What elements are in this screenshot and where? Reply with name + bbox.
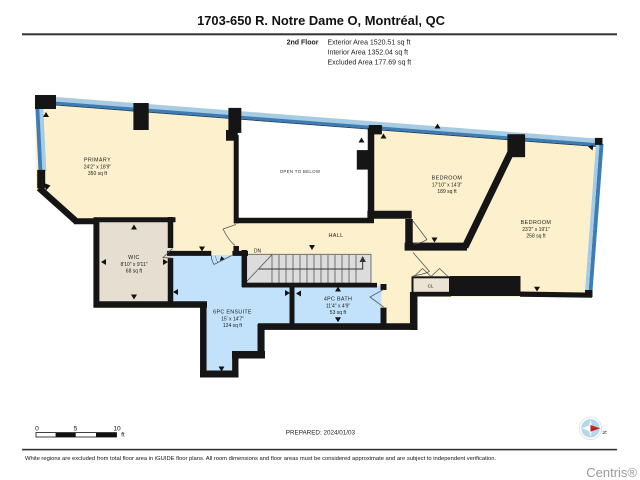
- svg-text:Excluded Area 177.69 sq ft: Excluded Area 177.69 sq ft: [328, 59, 412, 66]
- svg-text:ft: ft: [121, 432, 125, 438]
- svg-text:BEDROOM: BEDROOM: [432, 176, 463, 182]
- svg-text:Centris®: Centris®: [586, 465, 637, 480]
- svg-text:BEDROOM: BEDROOM: [521, 220, 552, 226]
- svg-text:15' x 14'7": 15' x 14'7": [221, 317, 244, 323]
- svg-text:23'2" x 19'1": 23'2" x 19'1": [522, 227, 550, 233]
- svg-text:2nd Floor: 2nd Floor: [287, 39, 319, 46]
- svg-text:N: N: [600, 431, 606, 435]
- svg-text:OPEN TO BELOW: OPEN TO BELOW: [280, 169, 321, 174]
- svg-text:68 sq ft: 68 sq ft: [126, 269, 143, 275]
- svg-text:PRIMARY: PRIMARY: [84, 158, 111, 164]
- svg-text:CL: CL: [428, 284, 434, 289]
- svg-text:17'10" x 14'3": 17'10" x 14'3": [432, 183, 462, 189]
- svg-text:HALL: HALL: [328, 233, 343, 239]
- svg-text:11'4" x 4'9": 11'4" x 4'9": [326, 304, 350, 310]
- svg-text:6PC ENSUITE: 6PC ENSUITE: [213, 310, 252, 316]
- svg-text:DN: DN: [254, 248, 262, 254]
- svg-text:Exterior Area 1520.51 sq ft: Exterior Area 1520.51 sq ft: [328, 39, 411, 46]
- svg-text:PREPARED: 2024/01/03: PREPARED: 2024/01/03: [286, 429, 356, 436]
- svg-text:WIC: WIC: [128, 255, 140, 261]
- svg-text:0: 0: [35, 426, 39, 433]
- svg-text:350 sq ft: 350 sq ft: [88, 171, 108, 177]
- svg-text:189 sq ft: 189 sq ft: [437, 189, 457, 195]
- svg-text:1703-650 R. Notre Dame O, Mont: 1703-650 R. Notre Dame O, Montréal, QC: [197, 13, 445, 28]
- svg-text:24'2" x 18'9": 24'2" x 18'9": [84, 165, 112, 171]
- svg-text:5: 5: [74, 426, 78, 433]
- svg-text:8'10" x 9'11": 8'10" x 9'11": [120, 262, 147, 268]
- svg-text:124 sq ft: 124 sq ft: [223, 323, 243, 329]
- svg-text:258 sq ft: 258 sq ft: [526, 234, 546, 240]
- svg-text:White regions are excluded fro: White regions are excluded from total fl…: [25, 456, 496, 462]
- svg-text:10: 10: [113, 426, 121, 433]
- svg-text:53 sq ft: 53 sq ft: [330, 310, 347, 316]
- svg-text:4PC BATH: 4PC BATH: [324, 297, 352, 303]
- svg-text:Interior Area 1352.04 sq ft: Interior Area 1352.04 sq ft: [328, 49, 409, 56]
